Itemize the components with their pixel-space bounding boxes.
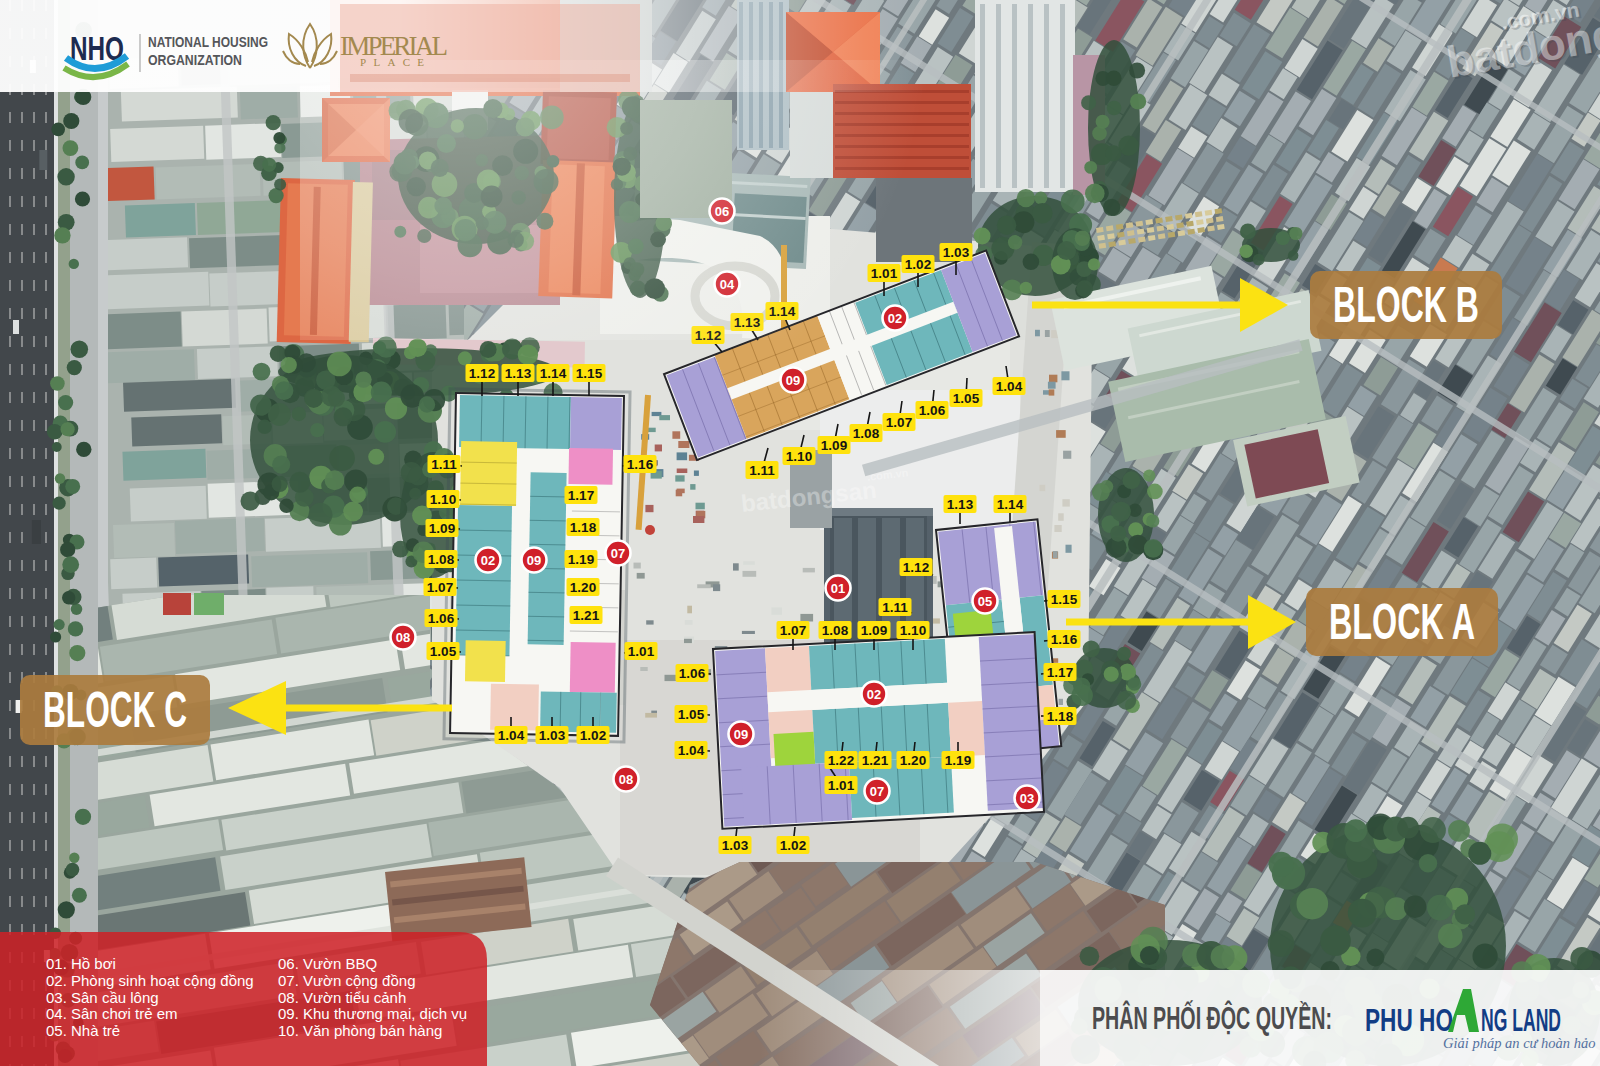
svg-text:09. Khu thương mại, dịch vụ: 09. Khu thương mại, dịch vụ [278,1005,467,1022]
svg-text:1.17: 1.17 [1047,665,1073,680]
svg-text:1.20: 1.20 [570,580,596,595]
svg-text:1.21: 1.21 [573,608,600,623]
svg-text:08: 08 [619,772,633,787]
svg-text:PHÂN PHỐI ĐỘC QUYỀN:: PHÂN PHỐI ĐỘC QUYỀN: [1092,1000,1332,1036]
svg-text:06. Vườn BBQ: 06. Vườn BBQ [278,955,377,972]
svg-text:02. Phòng sinh hoạt cộng đồng: 02. Phòng sinh hoạt cộng đồng [46,972,254,989]
svg-text:1.06: 1.06 [428,611,455,626]
svg-text:08: 08 [396,630,410,645]
svg-text:1.11: 1.11 [749,463,775,478]
svg-text:1.06: 1.06 [679,666,706,681]
svg-text:ORGANIZATION: ORGANIZATION [148,52,242,68]
svg-text:1.10: 1.10 [900,623,926,638]
svg-text:07: 07 [870,784,884,799]
svg-text:1.19: 1.19 [568,552,594,567]
svg-text:03: 03 [1020,791,1034,806]
svg-text:1.01: 1.01 [628,644,655,659]
svg-text:1.09: 1.09 [429,521,455,536]
svg-text:BLOCK C: BLOCK C [43,682,187,738]
svg-text:09: 09 [786,373,800,388]
svg-text:1.03: 1.03 [539,728,566,743]
svg-text:04. Sân chơi trẻ em: 04. Sân chơi trẻ em [46,1005,178,1022]
svg-text:1.15: 1.15 [576,366,603,381]
svg-text:1.07: 1.07 [886,415,912,430]
svg-text:1.01: 1.01 [828,778,855,793]
svg-text:02: 02 [867,687,881,702]
svg-text:1.22: 1.22 [828,753,854,768]
svg-text:1.02: 1.02 [580,728,606,743]
svg-text:03. Sân cầu lông: 03. Sân cầu lông [46,989,159,1006]
svg-text:07: 07 [611,546,625,561]
svg-text:1.19: 1.19 [945,753,971,768]
svg-text:1.12: 1.12 [903,560,929,575]
svg-text:08. Vườn tiểu cảnh: 08. Vườn tiểu cảnh [278,989,406,1006]
svg-text:1.04: 1.04 [678,743,705,758]
svg-text:1.09: 1.09 [861,623,887,638]
svg-text:1.14: 1.14 [540,366,567,381]
svg-text:1.04: 1.04 [996,379,1023,394]
svg-text:1.18: 1.18 [570,520,597,535]
svg-text:1.08: 1.08 [853,426,880,441]
svg-text:1.17: 1.17 [568,488,594,503]
svg-text:PHU HO: PHU HO [1365,1002,1453,1038]
svg-text:1.02: 1.02 [780,838,806,853]
svg-text:1.14: 1.14 [997,497,1024,512]
svg-text:02: 02 [481,553,495,568]
svg-text:1.03: 1.03 [722,838,749,853]
svg-text:1.15: 1.15 [1051,592,1078,607]
svg-text:1.09: 1.09 [821,438,847,453]
svg-text:1.06: 1.06 [919,403,946,418]
svg-text:1.20: 1.20 [900,753,926,768]
svg-text:1.11: 1.11 [431,457,457,472]
svg-text:BLOCK A: BLOCK A [1329,594,1475,650]
svg-text:1.11: 1.11 [882,600,908,615]
svg-text:1.08: 1.08 [428,552,455,567]
svg-text:NG LAND: NG LAND [1481,1002,1561,1038]
svg-text:10. Văn phòng bán hàng: 10. Văn phòng bán hàng [278,1022,442,1039]
svg-text:1.10: 1.10 [786,449,812,464]
svg-text:01: 01 [831,581,845,596]
svg-text:NATIONAL HOUSING: NATIONAL HOUSING [148,34,268,50]
svg-text:1.07: 1.07 [780,623,806,638]
svg-text:1.10: 1.10 [430,492,456,507]
svg-text:1.13: 1.13 [505,366,532,381]
svg-text:1.05: 1.05 [953,391,980,406]
svg-text:1.13: 1.13 [947,497,974,512]
svg-text:BLOCK B: BLOCK B [1333,277,1479,333]
svg-text:09: 09 [527,553,541,568]
svg-text:05: 05 [978,594,992,609]
svg-text:01. Hồ bơi: 01. Hồ bơi [46,955,116,972]
svg-text:1.07: 1.07 [427,580,453,595]
svg-text:1.05: 1.05 [678,707,705,722]
svg-text:Giải pháp an cư hoàn hảo: Giải pháp an cư hoàn hảo [1443,1035,1596,1051]
svg-text:1.16: 1.16 [627,457,654,472]
svg-text:1.16: 1.16 [1051,632,1078,647]
svg-text:1.05: 1.05 [430,644,457,659]
svg-text:1.21: 1.21 [862,753,889,768]
svg-text:1.12: 1.12 [469,366,495,381]
svg-text:09: 09 [734,727,748,742]
svg-text:1.18: 1.18 [1047,709,1074,724]
svg-text:07. Vườn cộng đồng: 07. Vườn cộng đồng [278,972,415,989]
svg-text:05. Nhà trẻ: 05. Nhà trẻ [46,1022,120,1039]
svg-text:1.04: 1.04 [498,728,525,743]
svg-text:1.08: 1.08 [822,623,849,638]
